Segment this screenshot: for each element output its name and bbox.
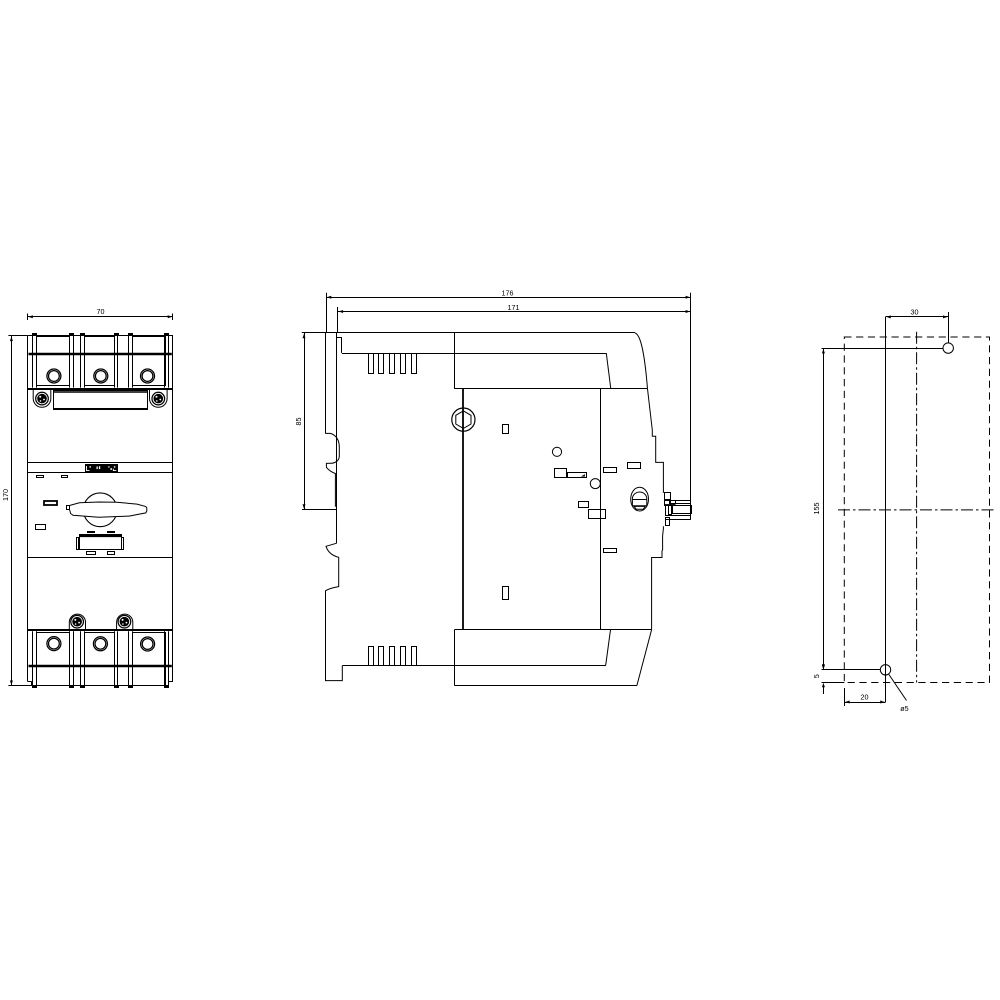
svg-text:5: 5 — [812, 674, 821, 678]
svg-text:70: 70 — [97, 307, 105, 316]
svg-text:ø5: ø5 — [900, 704, 908, 713]
svg-text:85: 85 — [294, 418, 303, 426]
svg-text:170: 170 — [1, 489, 10, 501]
svg-text:155: 155 — [812, 503, 821, 515]
svg-text:20: 20 — [861, 693, 869, 702]
svg-text:176: 176 — [502, 289, 514, 298]
svg-text:171: 171 — [508, 303, 520, 312]
svg-text:30: 30 — [911, 307, 919, 316]
